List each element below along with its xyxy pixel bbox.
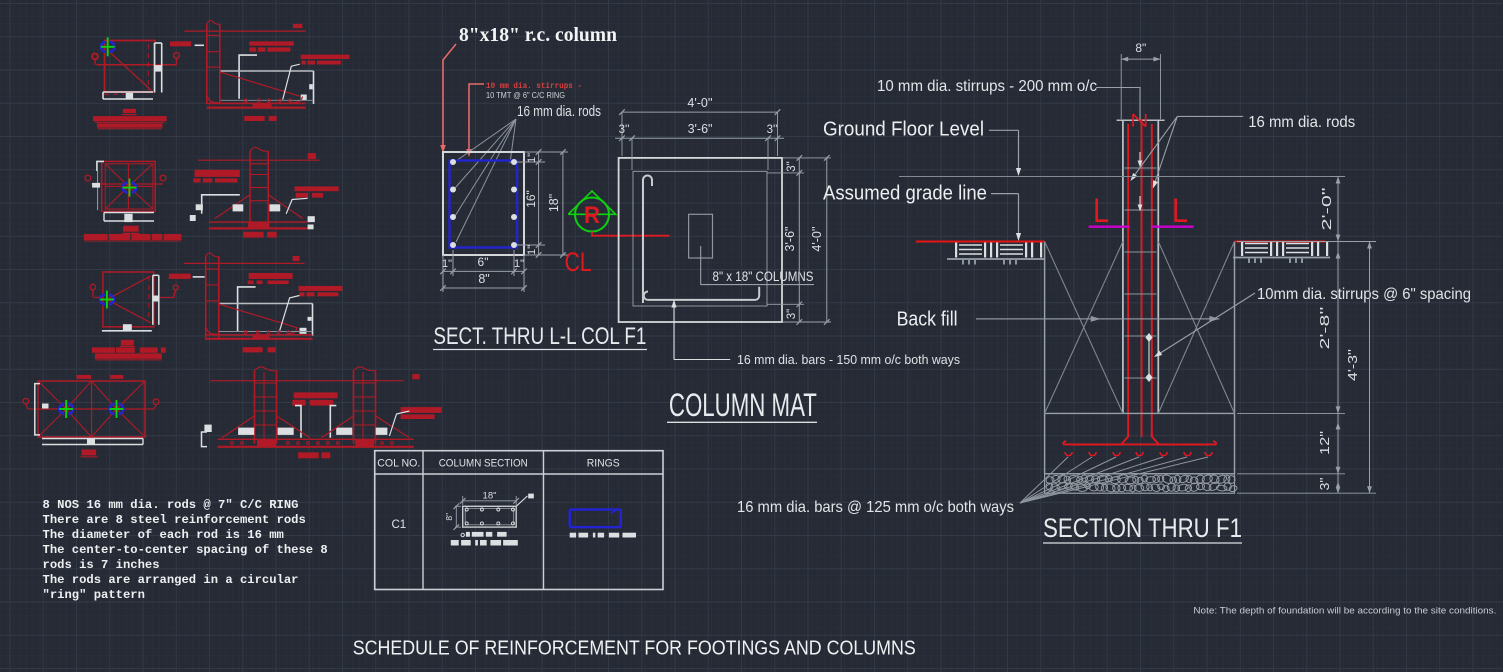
svg-text:Ground Floor Level: Ground Floor Level: [823, 119, 984, 141]
svg-text:4'-3'': 4'-3'': [1346, 349, 1360, 381]
svg-text:Note: The depth of foundation: Note: The depth of foundation will be ac…: [1193, 606, 1496, 617]
svg-text:3": 3": [1318, 478, 1332, 491]
svg-text:R: R: [584, 201, 600, 228]
svg-text:16": 16": [524, 190, 538, 208]
svg-text:COLUMN SECTION: COLUMN SECTION: [439, 458, 528, 470]
svg-text:2'-0": 2'-0": [1320, 188, 1334, 231]
svg-text:2'-8'': 2'-8'': [1318, 307, 1332, 350]
svg-text:3": 3": [786, 309, 798, 319]
svg-text:4'-0'': 4'-0'': [810, 226, 824, 251]
svg-text:Assumed grade line: Assumed grade line: [823, 183, 987, 205]
svg-text:The center-to-center spacing o: The center-to-center spacing of these 8: [43, 543, 328, 557]
svg-text:There are 8 steel reinforcemen: There are 8 steel reinforcement rods: [43, 513, 306, 527]
svg-text:RINGS: RINGS: [587, 458, 620, 470]
svg-text:8": 8": [1135, 41, 1146, 55]
svg-text:8": 8": [478, 272, 489, 286]
svg-text:1": 1": [526, 245, 538, 255]
svg-text:SECTION THRU F1: SECTION THRU F1: [1043, 513, 1242, 543]
svg-text:8"x18" r.c. column: 8"x18" r.c. column: [459, 24, 617, 46]
svg-text:Back fill: Back fill: [897, 309, 958, 331]
svg-text:16 mm dia. bars - 150 mm o/c b: 16 mm dia. bars - 150 mm o/c both ways: [737, 353, 960, 367]
svg-text:The rods are arranged in a cir: The rods are arranged in a circular: [43, 573, 299, 587]
svg-text:10mm dia. stirrups @ 6" spacin: 10mm dia. stirrups @ 6" spacing: [1257, 286, 1471, 303]
svg-text:18": 18": [547, 194, 561, 212]
svg-text:10 mm dia. stirrups - 200 mm o: 10 mm dia. stirrups - 200 mm o/c: [877, 78, 1097, 95]
svg-text:COL NO.: COL NO.: [377, 458, 420, 470]
svg-text:3'': 3'': [767, 124, 778, 136]
svg-text:3'-6": 3'-6": [688, 122, 713, 136]
svg-text:3": 3": [786, 161, 798, 171]
svg-text:The diameter of each rod is 16: The diameter of each rod is 16 mm: [43, 528, 284, 542]
svg-text:CL: CL: [565, 247, 592, 277]
svg-text:COLUMN MAT: COLUMN MAT: [669, 387, 817, 423]
svg-text:1": 1": [514, 258, 524, 270]
svg-text:12": 12": [1318, 431, 1332, 455]
svg-text:10 TMT @ 6" C/C RING: 10 TMT @ 6" C/C RING: [486, 90, 565, 100]
svg-text:4'-0'': 4'-0'': [687, 96, 712, 110]
svg-text:8" x 18" COLUMNS: 8" x 18" COLUMNS: [713, 269, 814, 284]
svg-text:"ring" pattern: "ring" pattern: [43, 588, 145, 602]
svg-text:16 mm dia. bars @ 125 mm o/c b: 16 mm dia. bars @ 125 mm o/c both ways: [737, 499, 1014, 516]
svg-text:L: L: [1093, 191, 1109, 230]
svg-text:L: L: [1172, 191, 1188, 230]
svg-text:8 NOS 16 mm dia. rods @ 7" C/C: 8 NOS 16 mm dia. rods @ 7" C/C RING: [43, 498, 299, 512]
svg-text:C1: C1: [391, 519, 406, 531]
svg-text:6": 6": [478, 255, 489, 269]
svg-text:18": 18": [483, 491, 497, 502]
svg-text:SECT. THRU L-L COL F1: SECT. THRU L-L COL F1: [433, 323, 646, 350]
svg-text:8": 8": [444, 513, 454, 521]
svg-text:16 mm dia. rods: 16 mm dia. rods: [1248, 114, 1355, 131]
svg-text:3'-6": 3'-6": [783, 227, 797, 252]
svg-text:3'': 3'': [619, 124, 630, 136]
svg-text:16 mm dia. rods: 16 mm dia. rods: [517, 104, 601, 120]
svg-text:rods is 7 inches: rods is 7 inches: [43, 558, 160, 572]
svg-text:1": 1": [442, 258, 452, 270]
svg-text:1": 1": [526, 153, 538, 163]
svg-text:SCHEDULE OF REINFORCEMENT FOR: SCHEDULE OF REINFORCEMENT FOR FOOTINGS A…: [353, 638, 916, 660]
